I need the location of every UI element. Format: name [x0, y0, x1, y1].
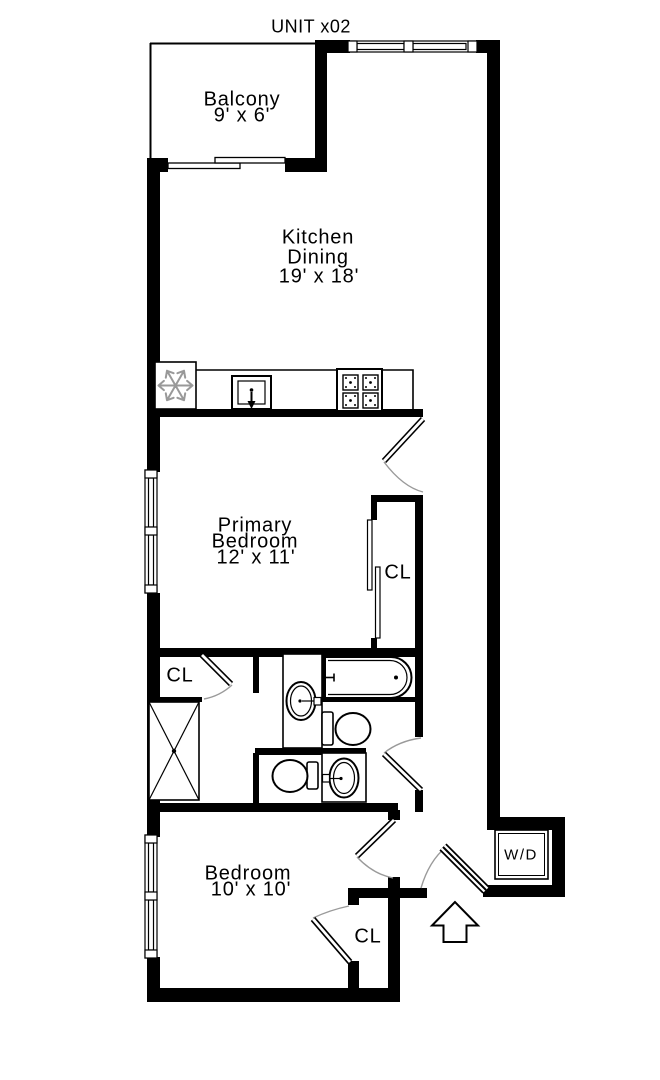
unit-title: UNIT x02 — [271, 17, 351, 38]
bedroom-window — [145, 835, 157, 958]
bedroom-dims: 10' x 10' — [211, 879, 291, 902]
toilet-2 — [273, 760, 319, 792]
stove — [337, 369, 382, 411]
top-window — [348, 41, 477, 52]
primary-bedroom-dims: 12' x 11' — [217, 547, 296, 570]
primary-closet-sliding-door — [368, 520, 381, 638]
primary-bedroom-window — [145, 470, 157, 593]
floor-plan-drawing — [0, 0, 660, 1080]
kitchen-dims: 19' x 18' — [279, 266, 359, 289]
primary-bedroom-door — [384, 419, 423, 461]
washer-dryer-label: W/D — [504, 847, 538, 864]
bathroom-door — [384, 754, 421, 790]
vanity-sink-1 — [283, 654, 322, 748]
entry-arrow-icon — [432, 902, 478, 942]
bedroom-closet-door — [313, 919, 350, 962]
bathroom-closet-door — [202, 655, 231, 684]
floor-plan: UNIT x02 Balcony 9' x 6' Kitchen Dining … — [0, 0, 660, 1080]
balcony-sliding-door — [168, 158, 285, 169]
bathroom-closet-label: CL — [166, 665, 193, 688]
balcony-dims: 9' x 6' — [214, 105, 271, 128]
bedroom-closet-label: CL — [354, 926, 381, 949]
shower — [149, 702, 199, 800]
vanity-sink-2 — [322, 753, 366, 802]
primary-closet-label: CL — [384, 562, 411, 585]
refrigerator — [155, 362, 196, 409]
entry-door — [443, 847, 486, 890]
kitchen-sink — [232, 376, 271, 409]
bedroom-door — [357, 820, 394, 856]
toilet-1 — [322, 712, 371, 745]
bathtub — [325, 657, 412, 698]
